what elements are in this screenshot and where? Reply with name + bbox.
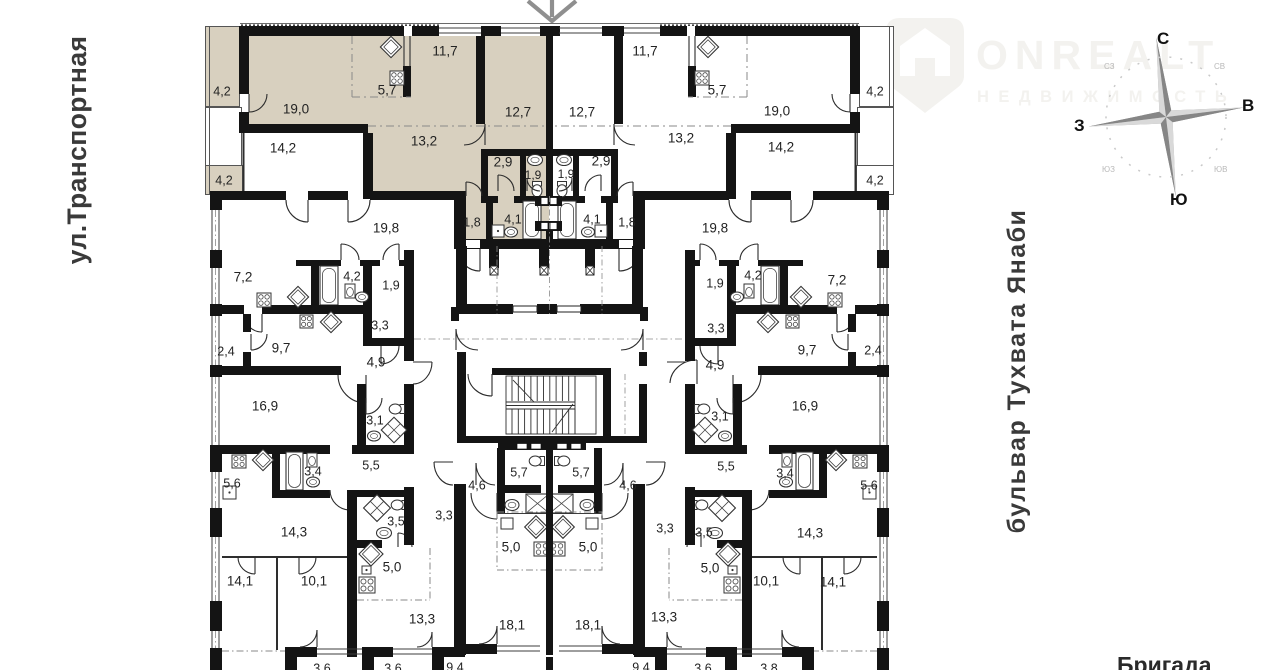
svg-text:5,0: 5,0 [383, 560, 402, 575]
svg-text:1,9: 1,9 [525, 168, 542, 182]
svg-text:9,4: 9,4 [632, 660, 649, 670]
svg-text:5,5: 5,5 [362, 458, 379, 472]
svg-text:14,3: 14,3 [281, 525, 307, 540]
svg-text:5,7: 5,7 [708, 83, 727, 98]
svg-text:11,7: 11,7 [432, 44, 457, 59]
svg-text:4,2: 4,2 [866, 84, 883, 98]
svg-text:16,9: 16,9 [252, 399, 278, 414]
svg-text:3,3: 3,3 [435, 508, 452, 522]
svg-text:2,4: 2,4 [217, 344, 234, 358]
svg-text:1,9: 1,9 [558, 167, 575, 181]
svg-text:19,0: 19,0 [283, 102, 309, 117]
svg-text:1,9: 1,9 [382, 278, 399, 292]
svg-text:Ю: Ю [1170, 190, 1188, 209]
svg-text:2,9: 2,9 [592, 154, 611, 169]
svg-text:1,8: 1,8 [618, 215, 635, 229]
svg-text:4,2: 4,2 [343, 269, 360, 283]
svg-text:2,9: 2,9 [494, 155, 513, 170]
svg-text:10,1: 10,1 [301, 574, 327, 589]
svg-text:4,1: 4,1 [504, 212, 521, 226]
svg-text:11,7: 11,7 [632, 44, 657, 59]
svg-text:4,2: 4,2 [866, 173, 883, 187]
svg-text:СВ: СВ [1214, 62, 1225, 71]
svg-text:19,8: 19,8 [373, 221, 399, 236]
svg-text:10,1: 10,1 [753, 574, 779, 589]
svg-text:3,4: 3,4 [776, 466, 793, 480]
svg-text:3,8: 3,8 [760, 661, 777, 670]
svg-text:ЮВ: ЮВ [1214, 165, 1227, 174]
svg-text:3,6: 3,6 [384, 661, 401, 670]
svg-text:5,0: 5,0 [502, 540, 521, 555]
svg-text:12,7: 12,7 [569, 105, 595, 120]
svg-text:4,9: 4,9 [706, 358, 725, 373]
svg-text:5,5: 5,5 [717, 459, 734, 473]
svg-text:С: С [1157, 29, 1169, 48]
svg-text:4,2: 4,2 [215, 173, 232, 187]
svg-text:7,2: 7,2 [234, 270, 253, 285]
svg-text:13,3: 13,3 [651, 610, 677, 625]
svg-text:9,4: 9,4 [446, 660, 463, 670]
svg-text:4,2: 4,2 [213, 84, 230, 98]
svg-text:5,6: 5,6 [223, 476, 240, 490]
svg-text:4,6: 4,6 [468, 478, 485, 492]
svg-text:18,1: 18,1 [499, 618, 525, 633]
svg-text:14,1: 14,1 [227, 574, 253, 589]
svg-text:5,6: 5,6 [860, 478, 877, 492]
svg-text:4,6: 4,6 [619, 478, 636, 492]
svg-text:3,6: 3,6 [313, 661, 330, 670]
svg-text:НЕДВИЖИМОСТЬ: НЕДВИЖИМОСТЬ [977, 88, 1236, 106]
svg-text:13,2: 13,2 [411, 134, 437, 149]
svg-text:14,2: 14,2 [768, 140, 794, 155]
svg-text:3,1: 3,1 [366, 413, 383, 427]
svg-text:3,1: 3,1 [711, 409, 728, 423]
svg-text:ЮЗ: ЮЗ [1102, 165, 1115, 174]
svg-text:19,8: 19,8 [702, 221, 728, 236]
svg-text:9,7: 9,7 [798, 343, 817, 358]
svg-text:14,1: 14,1 [820, 575, 846, 590]
svg-text:3,4: 3,4 [304, 464, 321, 478]
svg-text:14,2: 14,2 [270, 141, 296, 156]
svg-text:СЗ: СЗ [1104, 62, 1115, 71]
svg-text:ONREALT: ONREALT [976, 32, 1220, 78]
svg-text:16,9: 16,9 [792, 399, 818, 414]
svg-text:4,9: 4,9 [367, 355, 386, 370]
svg-text:5,0: 5,0 [579, 540, 598, 555]
svg-text:18,1: 18,1 [575, 618, 601, 633]
svg-text:9,7: 9,7 [272, 341, 291, 356]
svg-text:бульвар Тухвата Янаби: бульвар Тухвата Янаби [1003, 209, 1031, 534]
svg-text:3,3: 3,3 [656, 521, 673, 535]
svg-text:14,3: 14,3 [797, 526, 823, 541]
svg-text:З: З [1074, 116, 1085, 135]
svg-text:3,6: 3,6 [694, 661, 711, 670]
svg-text:13,2: 13,2 [668, 131, 694, 146]
svg-text:В: В [1242, 96, 1254, 115]
svg-text:5,7: 5,7 [510, 465, 527, 479]
svg-text:4,2: 4,2 [744, 268, 761, 282]
svg-text:3,5: 3,5 [695, 525, 712, 539]
svg-text:1,9: 1,9 [706, 276, 723, 290]
svg-text:12,7: 12,7 [505, 105, 531, 120]
svg-text:5,0: 5,0 [701, 561, 720, 576]
svg-text:13,3: 13,3 [409, 612, 435, 627]
svg-text:19,0: 19,0 [764, 104, 790, 119]
svg-text:3,5: 3,5 [387, 514, 404, 528]
svg-text:ул.Транспортная: ул.Транспортная [62, 36, 92, 265]
svg-text:2,4: 2,4 [864, 343, 881, 357]
svg-text:3,3: 3,3 [371, 318, 388, 332]
svg-text:3,3: 3,3 [707, 321, 724, 335]
svg-text:Бригада: Бригада [1117, 652, 1212, 670]
svg-text:5,7: 5,7 [572, 465, 589, 479]
svg-text:4,1: 4,1 [583, 212, 600, 226]
svg-text:5,7: 5,7 [378, 83, 397, 98]
svg-text:7,2: 7,2 [828, 273, 847, 288]
svg-text:1,8: 1,8 [463, 215, 480, 229]
